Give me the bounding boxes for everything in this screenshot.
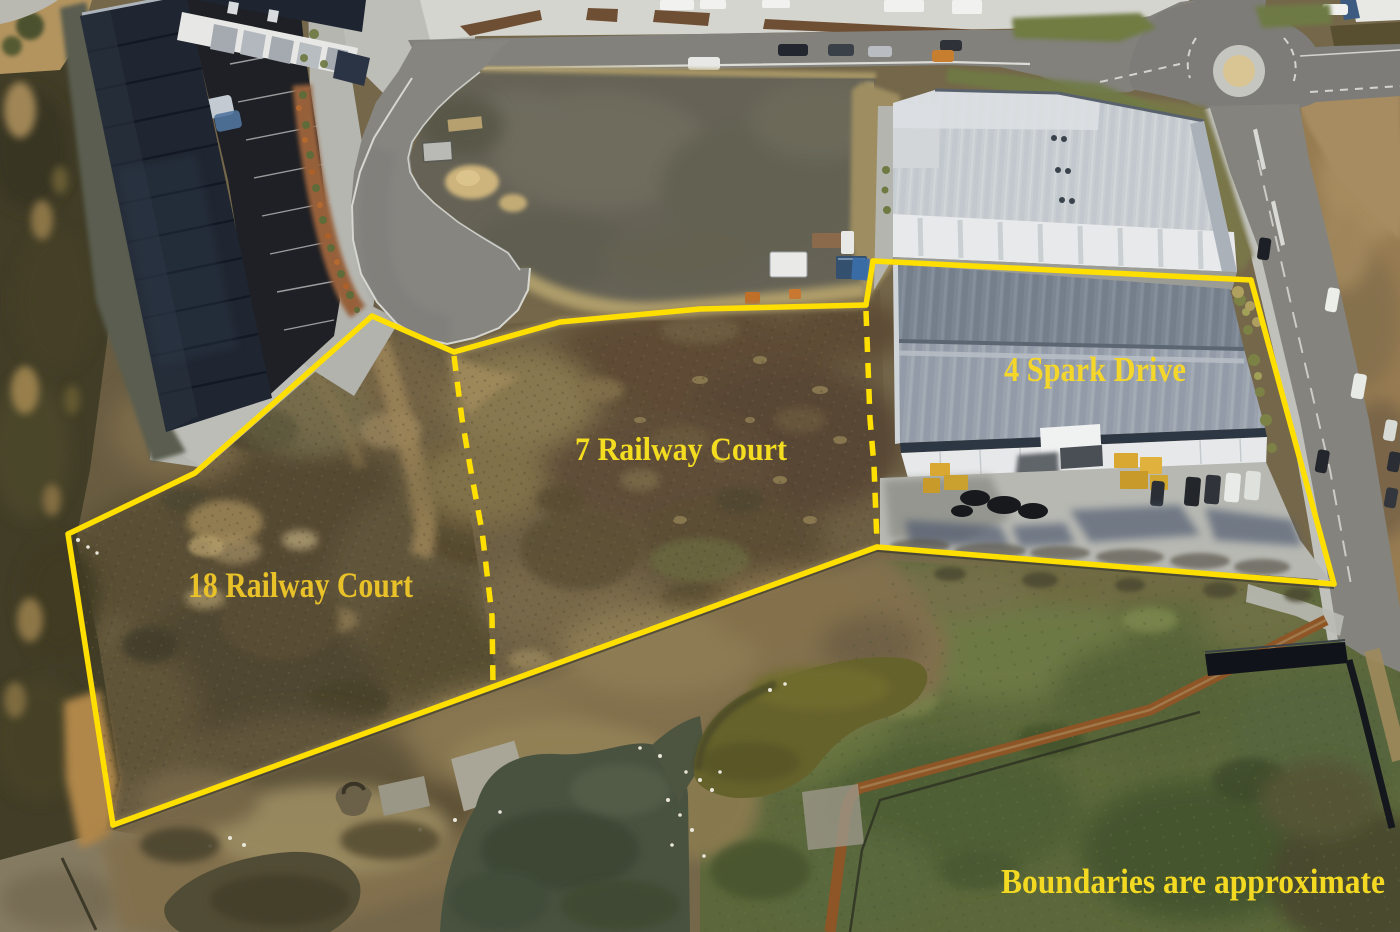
- svg-text:Boundaries are approximate: Boundaries are approximate: [1001, 862, 1385, 901]
- svg-text:7 Railway Court: 7 Railway Court: [575, 432, 787, 468]
- svg-text:18 Railway Court: 18 Railway Court: [188, 565, 413, 605]
- svg-text:4 Spark Drive: 4 Spark Drive: [1004, 350, 1186, 389]
